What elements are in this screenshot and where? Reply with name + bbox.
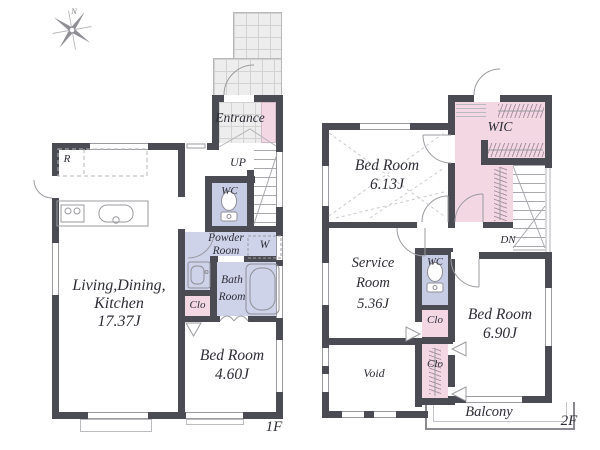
label-line: Powder bbox=[202, 232, 250, 245]
label-line: Living,Dining, bbox=[62, 277, 176, 295]
room-label-bedroom1-2f: Bed Room 6.13J bbox=[340, 157, 434, 194]
floor-plan-canvas: N Entrance UP WC Powder Room W Bath Room… bbox=[0, 0, 600, 450]
window-line bbox=[546, 168, 550, 252]
stairs-dn-label: DN bbox=[488, 234, 528, 247]
label-line: Room bbox=[339, 273, 407, 293]
label-line: 6.90J bbox=[453, 325, 547, 344]
bath-folding-door bbox=[220, 316, 248, 321]
room-label-wc-2f: WC bbox=[422, 257, 448, 270]
room-label-bath: Bath Room bbox=[212, 272, 252, 305]
label-line: 4.60J bbox=[188, 366, 276, 385]
room-label-bedroom-1f: Bed Room 4.60J bbox=[188, 347, 276, 384]
room-label-bedroom2-2f: Bed Room 6.90J bbox=[453, 306, 547, 343]
room-label-entrance: Entrance bbox=[212, 110, 268, 126]
hall-entrance-door bbox=[187, 144, 205, 148]
floor-label-2f: 2F bbox=[546, 412, 592, 430]
room-label-powder: Powder Room bbox=[202, 232, 250, 257]
plan-linework bbox=[0, 0, 600, 450]
room-label-wc-1f: WC bbox=[212, 185, 247, 198]
room-label-ldk: Living,Dining, Kitchen 17.37J bbox=[62, 277, 176, 331]
room-label-void: Void bbox=[352, 366, 396, 380]
label-line: Kitchen bbox=[62, 295, 176, 313]
washbasin-icon bbox=[188, 262, 210, 288]
label-line: 6.13J bbox=[340, 176, 434, 195]
label-line: Bed Room bbox=[453, 306, 547, 325]
kitchen-fixtures bbox=[57, 201, 148, 226]
room-label-closet-1f: Clo bbox=[185, 299, 210, 312]
label-line: 5.36J bbox=[339, 294, 407, 314]
label-line: Room bbox=[212, 289, 252, 306]
washer-label: W bbox=[248, 239, 281, 253]
room-label-closet-lower: Clo bbox=[422, 358, 448, 371]
label-line: Room bbox=[202, 245, 250, 258]
label-line: 17.37J bbox=[62, 313, 176, 331]
fridge-label: R bbox=[56, 153, 78, 166]
floor-label-1f: 1F bbox=[252, 418, 296, 436]
label-line: Bed Room bbox=[340, 157, 434, 176]
stove-icon bbox=[61, 205, 84, 222]
room-label-wic: WIC bbox=[478, 119, 522, 135]
entrance-step-lines bbox=[219, 129, 276, 147]
hanger-rail-lines bbox=[435, 111, 543, 396]
room-label-service: Service Room 5.36J bbox=[339, 253, 407, 314]
stairs-up-label: UP bbox=[216, 155, 260, 169]
compass-north-label: N bbox=[64, 6, 84, 16]
sink-icon bbox=[99, 205, 133, 222]
room-label-balcony: Balcony bbox=[448, 404, 530, 421]
room-label-closet-upper: Clo bbox=[422, 314, 448, 327]
label-line: Bath bbox=[212, 272, 252, 289]
label-line: Bed Room bbox=[188, 347, 276, 366]
label-line: Service bbox=[339, 253, 407, 273]
